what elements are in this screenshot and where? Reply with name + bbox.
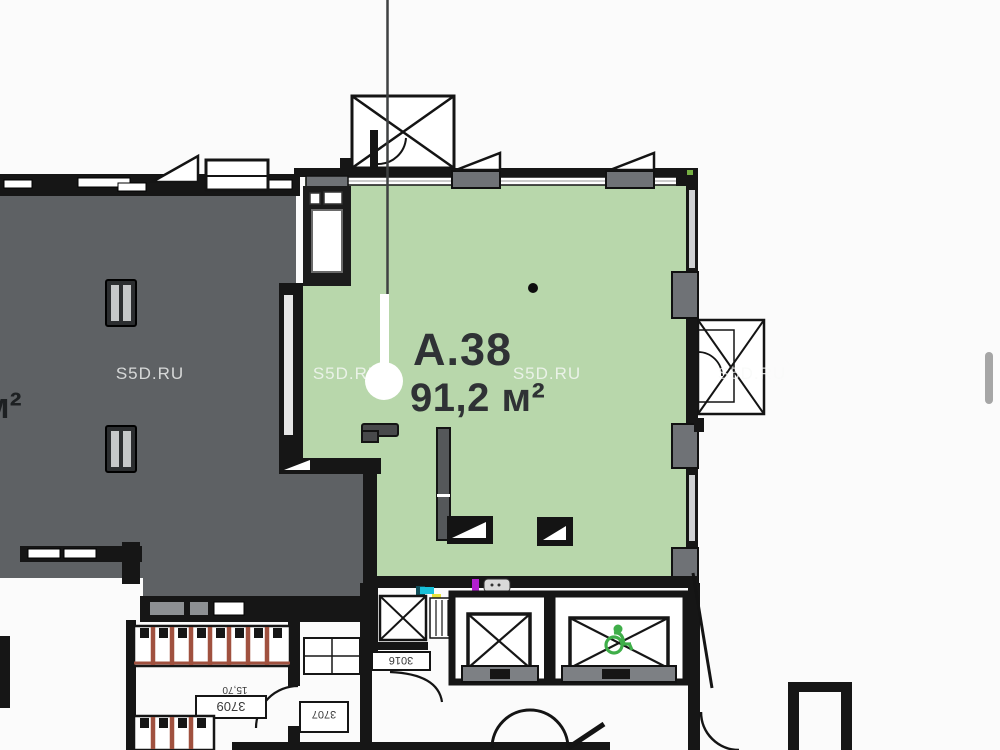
column-symbol xyxy=(106,280,136,326)
shaft-crossed-box-right xyxy=(694,320,764,432)
location-pin-stem xyxy=(380,294,389,370)
column-symbol xyxy=(106,426,136,472)
ceiling-point xyxy=(528,283,538,293)
floor-plan-canvas xyxy=(0,0,1000,750)
door-arc xyxy=(390,672,442,702)
neighbor-top-wall xyxy=(0,156,300,196)
scrollbar-thumb[interactable] xyxy=(985,352,993,404)
location-pin[interactable] xyxy=(365,362,403,400)
window-shaft xyxy=(303,176,351,286)
shaft-crossed-box-top xyxy=(340,96,454,170)
staircase xyxy=(126,612,300,750)
vent-shaft-room xyxy=(368,583,454,702)
elevator-right-accessible xyxy=(552,594,686,682)
door-arc xyxy=(701,712,739,750)
elevator-left xyxy=(452,594,548,682)
floor-plan-stage: S5D.RU S5D.RU S5D.RU S5D.RU м² А.38 91,2… xyxy=(0,0,1000,750)
neighbor-bottom-wall xyxy=(140,596,367,622)
